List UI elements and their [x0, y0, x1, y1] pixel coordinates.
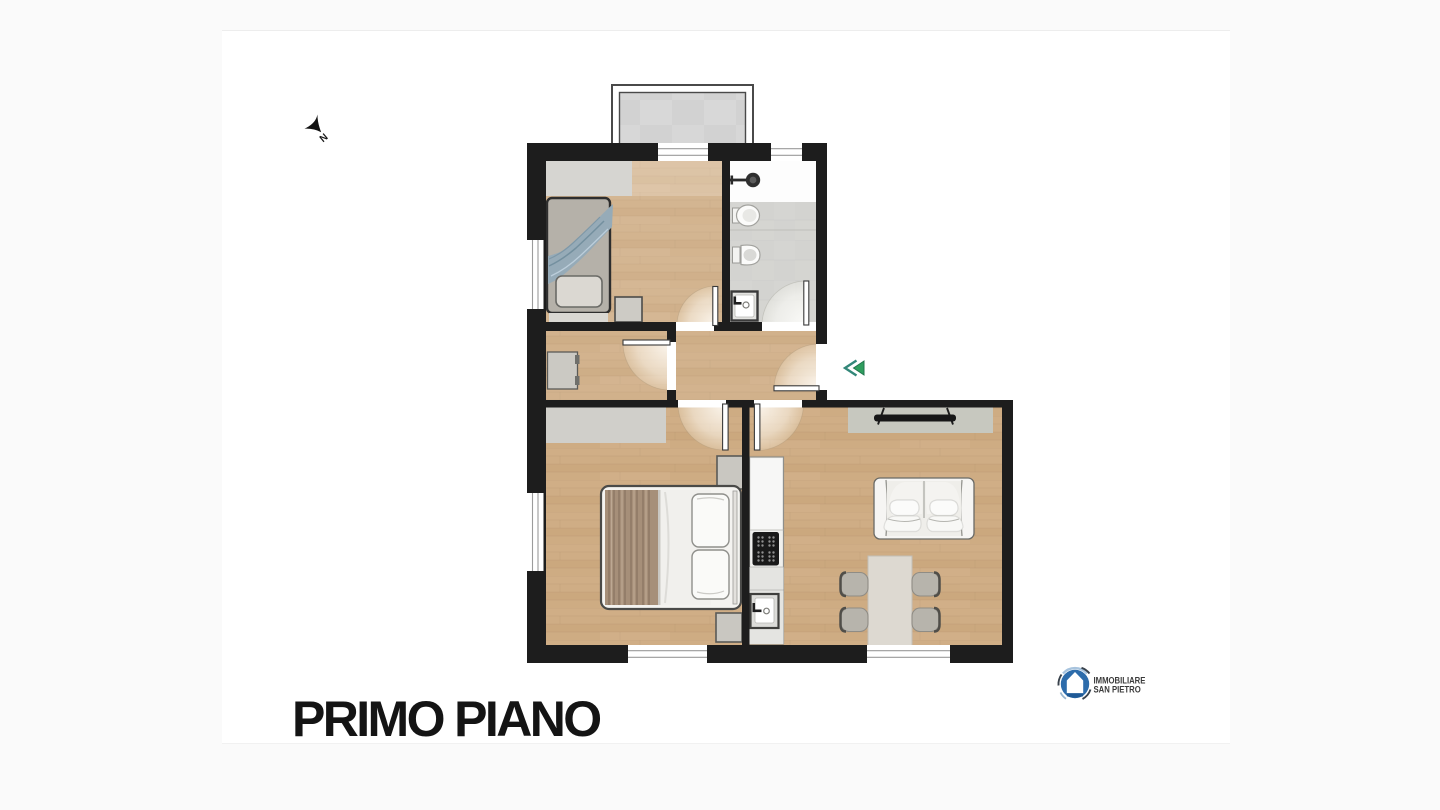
- svg-text:SAN PIETRO: SAN PIETRO: [1093, 684, 1141, 695]
- svg-text:N: N: [318, 132, 331, 145]
